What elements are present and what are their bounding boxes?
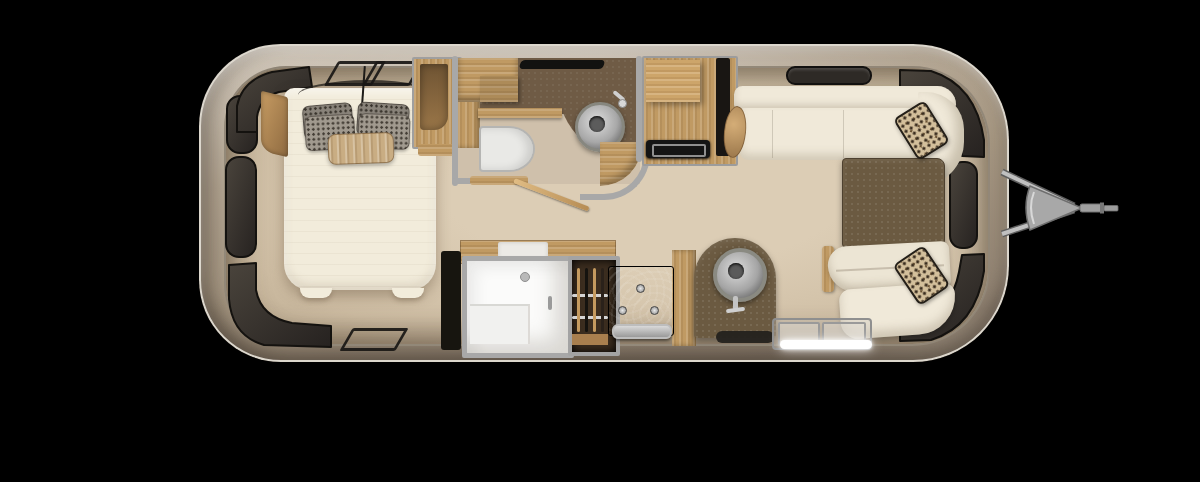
entry-floor-mat	[716, 331, 774, 343]
hitch-frame-bar-highlight	[1002, 210, 1074, 234]
hitch-tongue	[1080, 204, 1102, 212]
shower-bench	[470, 304, 530, 344]
sofa-cushion-seam	[772, 110, 773, 158]
hitch-cover-highlight	[1031, 192, 1034, 224]
hitch-frame-bar-highlight	[1002, 172, 1074, 206]
wardrobe-floor	[572, 334, 608, 345]
bolster-pillow	[327, 132, 394, 165]
bed-foot-cushion	[300, 288, 332, 298]
bedroom-wardrobe-interior	[420, 64, 448, 130]
clothes-hanger-icon	[601, 268, 604, 332]
entry-step-light	[780, 340, 872, 349]
stove-knob	[650, 306, 659, 315]
ceiling-vent	[786, 66, 872, 85]
bedroom-wardrobe-base	[418, 144, 454, 156]
hitch-assembly	[1000, 150, 1130, 270]
bathroom-cabinet-box	[480, 76, 518, 102]
shower-drain	[520, 272, 530, 282]
trailer-floorplan-canvas	[0, 0, 1200, 482]
hitch-frame-bar	[1002, 172, 1074, 206]
cabinet-end-panel	[441, 251, 461, 350]
cabinet-box	[646, 60, 700, 102]
dinette-table	[842, 158, 945, 248]
oven-handle	[612, 324, 672, 339]
stove-knob	[636, 284, 645, 293]
clothes-hanger-icon	[585, 268, 588, 332]
shower-faucet	[548, 296, 552, 310]
corner-shelf	[261, 91, 288, 158]
clothes-hanger-icon	[593, 268, 596, 332]
galley-cabinet-side	[672, 250, 696, 346]
tongue-coupler	[1104, 206, 1118, 212]
toilet	[479, 126, 535, 172]
bed-foot-cushion	[392, 288, 424, 298]
bathroom-counter-edge	[478, 108, 562, 118]
bathroom-sink-drain	[589, 116, 605, 132]
tongue-jack	[1100, 203, 1104, 214]
a-frame-hitch-cover	[1026, 186, 1082, 230]
galley-sink-drain	[728, 263, 744, 279]
microwave-door	[652, 144, 706, 157]
clothes-hanger-icon	[577, 268, 580, 332]
hitch-frame-bar	[1002, 210, 1074, 234]
bathroom-faucet-knob	[618, 99, 627, 108]
bathroom-wall	[452, 56, 458, 186]
bathroom-vent	[519, 60, 606, 69]
sofa-cushion-seam	[843, 110, 844, 158]
stove-knob	[618, 306, 627, 315]
